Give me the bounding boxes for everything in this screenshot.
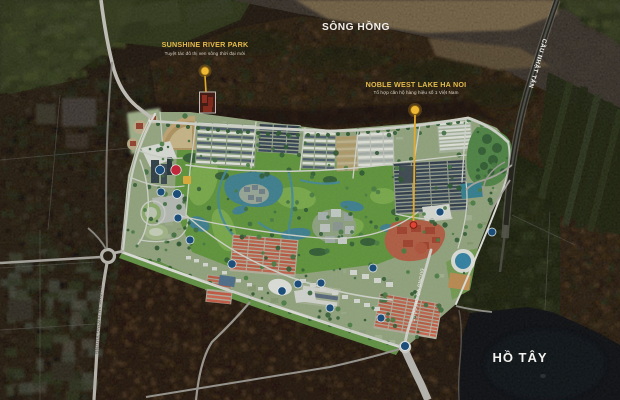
svg-text:Tuyệt tác đô thị ven sông thời: Tuyệt tác đô thị ven sông thời đại mới (165, 51, 246, 56)
svg-text:SÔNG HỒNG: SÔNG HỒNG (322, 20, 390, 33)
svg-text:NOBLE WEST LAKE HA NOI: NOBLE WEST LAKE HA NOI (366, 80, 467, 89)
svg-text:HỒ TÂY: HỒ TÂY (492, 350, 547, 365)
svg-text:SUNSHINE RIVER PARK: SUNSHINE RIVER PARK (162, 40, 249, 49)
svg-text:Tổ hợp căn hộ hàng hiệu số 1 V: Tổ hợp căn hộ hàng hiệu số 1 Việt Nam (373, 89, 458, 95)
